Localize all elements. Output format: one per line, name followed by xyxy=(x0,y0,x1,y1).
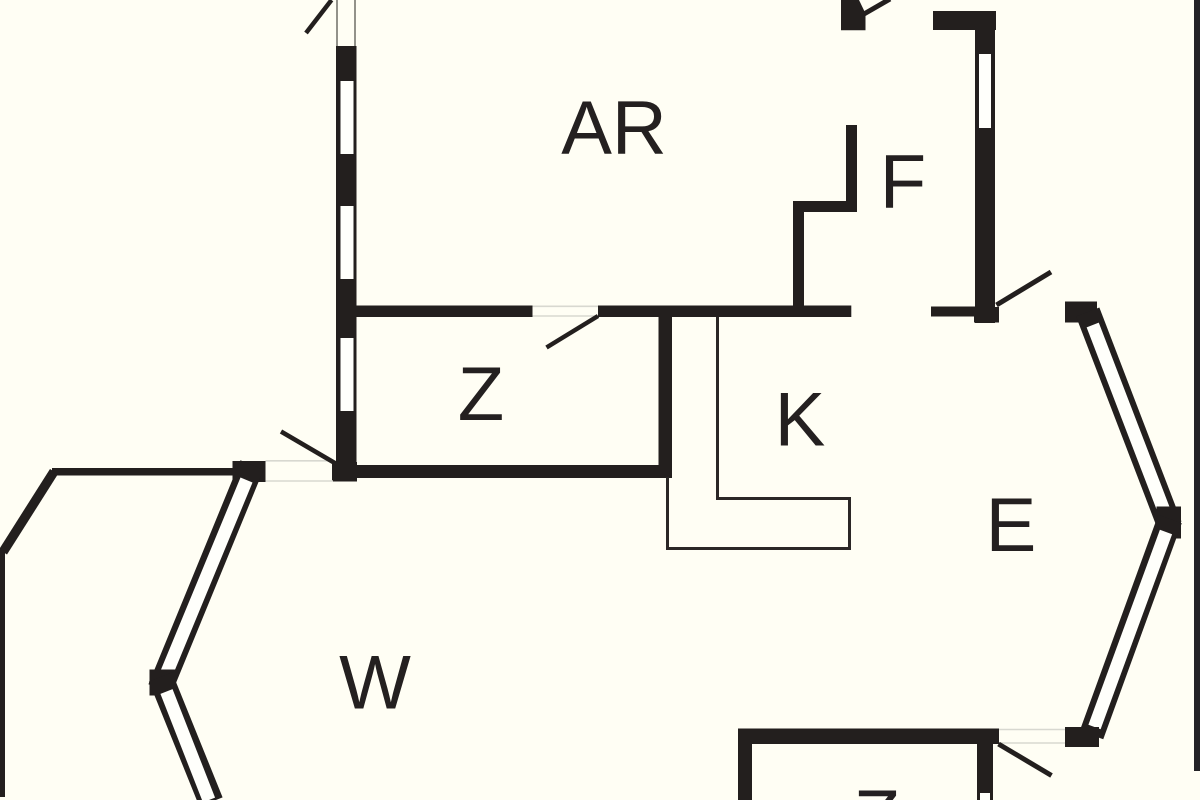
svg-text:Z: Z xyxy=(854,775,900,800)
svg-text:F: F xyxy=(880,140,926,225)
svg-text:E: E xyxy=(986,483,1037,568)
svg-text:W: W xyxy=(339,641,411,726)
svg-text:AR: AR xyxy=(561,86,667,171)
svg-text:K: K xyxy=(775,377,826,462)
svg-text:Z: Z xyxy=(458,352,504,437)
